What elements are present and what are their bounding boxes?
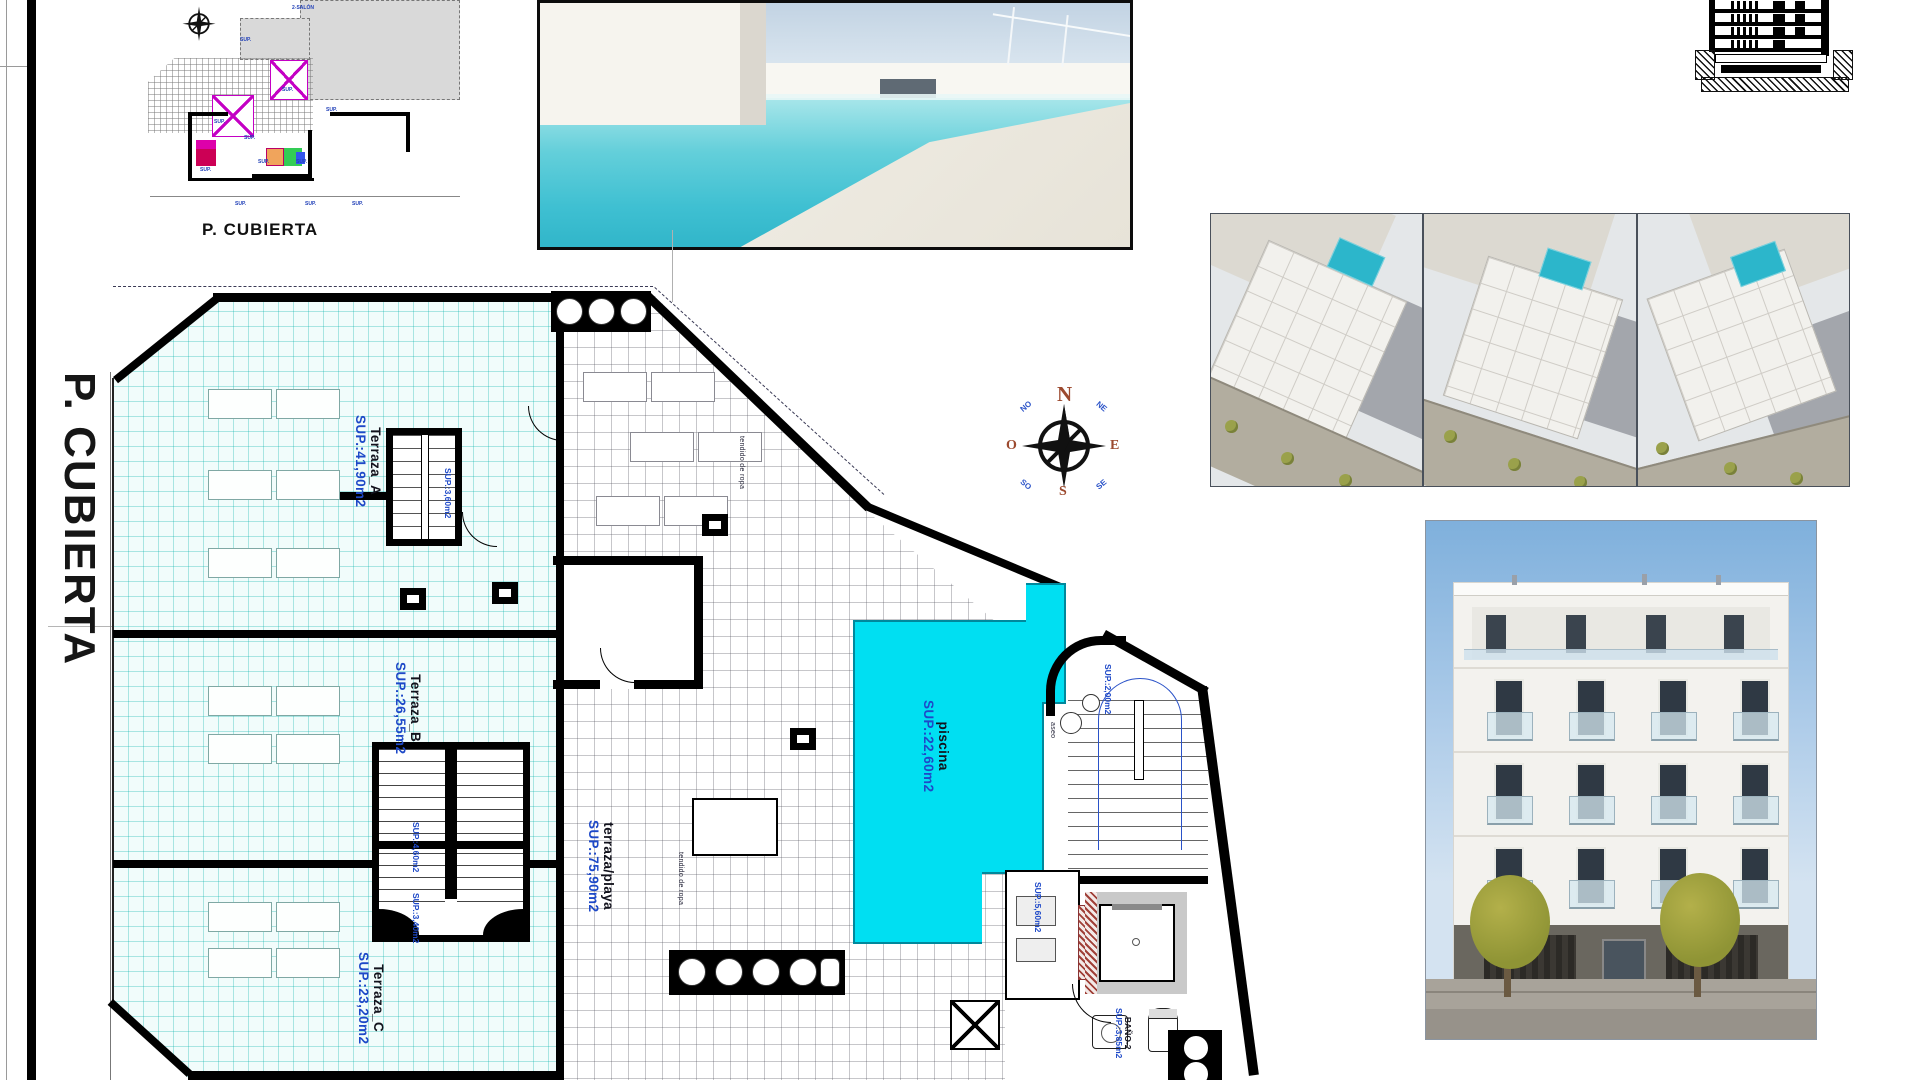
section-window	[1773, 14, 1785, 22]
aerial-renders	[1210, 213, 1850, 487]
rooflight-rect	[820, 958, 840, 987]
aseo-label: aseo	[1048, 722, 1056, 738]
elevator-marker	[1132, 938, 1140, 946]
roof-hatch	[950, 1000, 1000, 1050]
door-arc	[1072, 984, 1111, 1023]
section-slab	[1709, 9, 1827, 13]
section-windows	[1731, 1, 1759, 9]
mini-wall	[188, 178, 314, 181]
laundry-counter	[1168, 1030, 1222, 1080]
tendido-label: tendido de ropa	[676, 852, 684, 905]
wall-left-edge	[112, 378, 114, 1002]
mini-dim-label: SUP.	[352, 202, 363, 208]
mini-unit-marker-magenta	[196, 140, 216, 149]
tree-icon	[1281, 452, 1294, 465]
tree-icon	[1225, 420, 1238, 433]
roof-vent	[702, 514, 728, 536]
bano-label: BAÑO-2 SUP.:3,85m2	[1114, 1008, 1132, 1058]
playa-label: terraza/playa SUP.:75,90m2	[586, 820, 615, 912]
plan-left-frame	[110, 372, 111, 1080]
wall-stair-bottom	[1068, 876, 1208, 884]
section-window	[1773, 27, 1785, 35]
section-window	[1773, 40, 1785, 48]
wall-divider-ab	[113, 630, 560, 638]
mini-label: SUP.	[258, 160, 269, 166]
mini-label: SUP.	[240, 38, 251, 44]
mini-label: 2-SALÓN	[292, 6, 314, 12]
sun-loungers	[583, 372, 715, 402]
drawing-sheet: P. CUBIERTA 2-SALÓN SUP. SUP.	[0, 0, 1920, 1080]
sink-icon	[1082, 694, 1100, 712]
mini-label: SUP.	[326, 108, 337, 114]
compass-n: N	[1057, 382, 1072, 407]
section-slab	[1709, 48, 1827, 52]
mini-wall	[188, 112, 228, 116]
facade-render	[1425, 520, 1817, 1040]
section-drawing	[1695, 0, 1855, 95]
mini-wall	[188, 112, 192, 178]
mini-skylight-box	[270, 60, 308, 100]
stair-b-sup-label: SUP.:4,60m2	[411, 822, 420, 872]
render-white-volume	[540, 3, 740, 125]
section-col	[1709, 0, 1715, 52]
section-ground-hatch	[1695, 50, 1715, 80]
mini-wall	[330, 112, 410, 116]
mini-wall	[406, 112, 410, 152]
centerline	[672, 230, 673, 302]
pool-render-photo	[537, 0, 1133, 250]
piscina-label: piscina SUP.:22,60m2	[921, 700, 950, 792]
section-ground-band	[1715, 54, 1827, 63]
section-window	[1795, 1, 1805, 9]
sun-loungers	[208, 902, 340, 932]
tree-icon	[1660, 873, 1740, 967]
section-window	[1795, 14, 1805, 22]
elevator-hatch-wall	[1085, 892, 1097, 994]
section-ground-hatch	[1701, 77, 1849, 92]
mini-neighbour-block	[300, 0, 460, 100]
frame-thick-bar	[27, 0, 36, 1080]
wall-core-top	[553, 556, 703, 565]
elevator-door	[1112, 904, 1162, 910]
sun-loungers	[208, 734, 340, 764]
stair-bc	[372, 742, 530, 942]
stairwell-spine	[1134, 700, 1144, 780]
tree-icon	[1339, 474, 1352, 487]
render-white-volume-side	[740, 3, 766, 125]
sun-loungers	[208, 389, 340, 419]
street	[1426, 979, 1816, 1040]
compass-s: S	[1059, 484, 1067, 500]
tendido-label: tendido de ropa	[737, 436, 745, 489]
rooflight-circle	[678, 958, 706, 986]
rooflight-circle	[715, 958, 743, 986]
mini-skylight-box	[212, 95, 254, 137]
compass-o: O	[1006, 438, 1017, 454]
skylight	[692, 798, 778, 856]
sun-loungers	[208, 548, 340, 578]
toilet-icon	[1060, 712, 1082, 734]
roof-vent	[400, 588, 426, 610]
wall-bottom	[188, 1071, 560, 1080]
terraza-c-label: Terraza_C SUP.:23,20m2	[356, 952, 385, 1044]
wall-top	[213, 293, 553, 302]
section-ground-hatch	[1833, 50, 1853, 80]
rooflight-circle	[752, 958, 780, 986]
rooflight-circle	[588, 298, 615, 325]
section-basement	[1721, 65, 1821, 73]
frame-thin-line	[6, 0, 7, 1080]
overhang-dashed-line	[113, 286, 653, 287]
compass-e: E	[1110, 438, 1119, 454]
terraza-b-label: Terraza_B SUP.:26,55m2	[393, 662, 422, 754]
roof-vent	[790, 728, 816, 750]
stair-right-sup-label: SUP.:2,00m2	[1103, 664, 1112, 714]
tree-icon	[1574, 476, 1587, 487]
mini-plan-caption: P. CUBIERTA	[202, 220, 318, 240]
mini-label: SUP.	[282, 88, 293, 94]
roof-vent	[492, 582, 518, 604]
sun-loungers	[208, 686, 340, 716]
mini-unit-marker-crimson	[196, 149, 216, 166]
section-slab	[1709, 35, 1827, 39]
stair-c-sup-label: SUP.:3,40m2	[411, 893, 420, 943]
tree-icon	[1656, 442, 1669, 455]
frame-tick	[0, 66, 27, 67]
rooflight-circle	[789, 958, 817, 986]
sun-loungers	[208, 948, 340, 978]
mini-compass-icon	[178, 2, 220, 44]
section-windows	[1731, 40, 1759, 48]
sun-loungers	[208, 470, 340, 500]
mini-label: SUP.	[214, 120, 225, 126]
aerial-render-3	[1637, 213, 1850, 487]
compass-rose: N S E O NE NO SE SO	[1008, 388, 1120, 500]
sheet-title-vertical: P. CUBIERTA	[54, 372, 104, 666]
mini-dim-label: SUP.	[305, 202, 316, 208]
mini-wall	[308, 130, 312, 178]
mini-label: SUP.	[296, 160, 307, 166]
section-windows	[1731, 27, 1759, 35]
wall-core-right	[694, 556, 703, 689]
tree-icon	[1470, 875, 1550, 969]
mini-label: SUP.	[200, 168, 211, 174]
mini-label: SUP.	[244, 136, 255, 142]
plant-sup-label: SUP.:5,60m2	[1033, 882, 1042, 932]
stair-a-sup-label: SUP.:3,60m2	[443, 468, 452, 518]
terraza-a-label: Terraza_A SUP.:41,90m2	[353, 415, 382, 507]
section-windows	[1731, 14, 1759, 22]
rooflight-circle	[556, 298, 583, 325]
aerial-render-1	[1210, 213, 1423, 487]
section-slab	[1709, 22, 1827, 26]
mini-dim-label: SUP.	[235, 202, 246, 208]
tree-icon	[1790, 472, 1803, 485]
section-window	[1795, 27, 1805, 35]
plant-equipment	[1016, 938, 1056, 962]
rooflight-circle	[620, 298, 647, 325]
section-window	[1773, 1, 1785, 9]
mini-dim-line	[150, 196, 460, 197]
aerial-render-2	[1423, 213, 1636, 487]
tree-icon	[1724, 462, 1737, 475]
mini-plan: 2-SALÓN SUP. SUP. SUP. SUP. SUP. SUP. SU…	[130, 0, 470, 255]
